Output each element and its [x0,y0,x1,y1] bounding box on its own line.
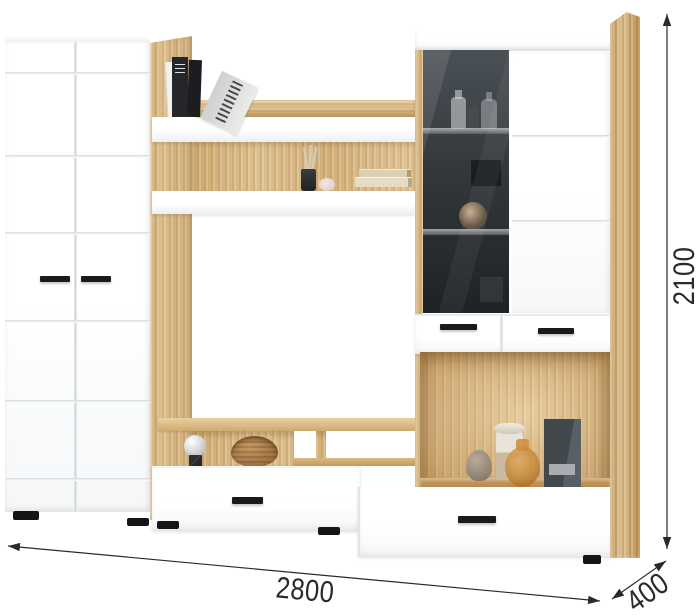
depth-dimension-label: 400 [614,563,681,615]
cabinet-right-drawer-handle [538,328,574,334]
door-groove [512,220,610,223]
amber-glass-vase-icon [505,447,540,487]
lower-shelf [152,191,415,214]
gift-box-label [549,464,575,475]
open-compartment [294,431,316,458]
furniture-product-image: 2800 400 2100 [0,0,700,615]
cabinet-side-panel [610,12,640,558]
standing-books-icon [187,60,202,117]
dark-gift-box-icon [544,419,581,488]
height-dimension-label: 2100 [670,238,700,315]
wardrobe-groove [5,72,150,75]
sphere-lamp-icon [184,435,206,457]
glass-sheen [423,50,509,313]
ceramic-vase-rim [494,423,525,434]
wardrobe-groove [5,155,150,158]
stone-vase-icon [466,450,492,481]
wardrobe-right-handle [81,276,111,282]
wardrobe-body [5,42,150,512]
pink-trinket-icon [319,178,335,191]
wooden-bowl-icon [231,436,278,467]
wardrobe-door-gap [74,42,77,512]
tv-stand-top-board [158,418,418,431]
cabinet-left-drawer-handle [440,324,477,330]
wardrobe-groove [5,232,150,235]
furniture-foot [583,555,601,564]
book-title-lines [175,61,185,73]
width-dimension-label: 2800 [257,572,353,611]
upper-shelf [152,117,415,142]
standing-books-icon [172,57,188,117]
open-compartment [326,431,418,458]
wardrobe-groove [5,320,150,323]
lying-books-icon [355,177,412,187]
cabinet-top-board [415,24,612,51]
compartment-floor [294,458,418,466]
furniture-foot [318,527,340,535]
wardrobe-groove [5,478,150,481]
wardrobe-left-handle [40,276,70,282]
bottom-right-drawer-handle [458,516,496,523]
furniture-foot [13,511,39,520]
cabinet-white-door [512,52,610,313]
furniture-foot [157,521,179,529]
book-title-lines [215,81,242,124]
cabinet-drawer-row [415,314,612,354]
wardrobe-groove [5,400,150,403]
center-drawer-handle [232,497,263,504]
furniture-foot [127,518,149,526]
drawer-divider [500,314,503,352]
reed-diffuser-icon [301,169,316,191]
door-groove [512,135,610,138]
